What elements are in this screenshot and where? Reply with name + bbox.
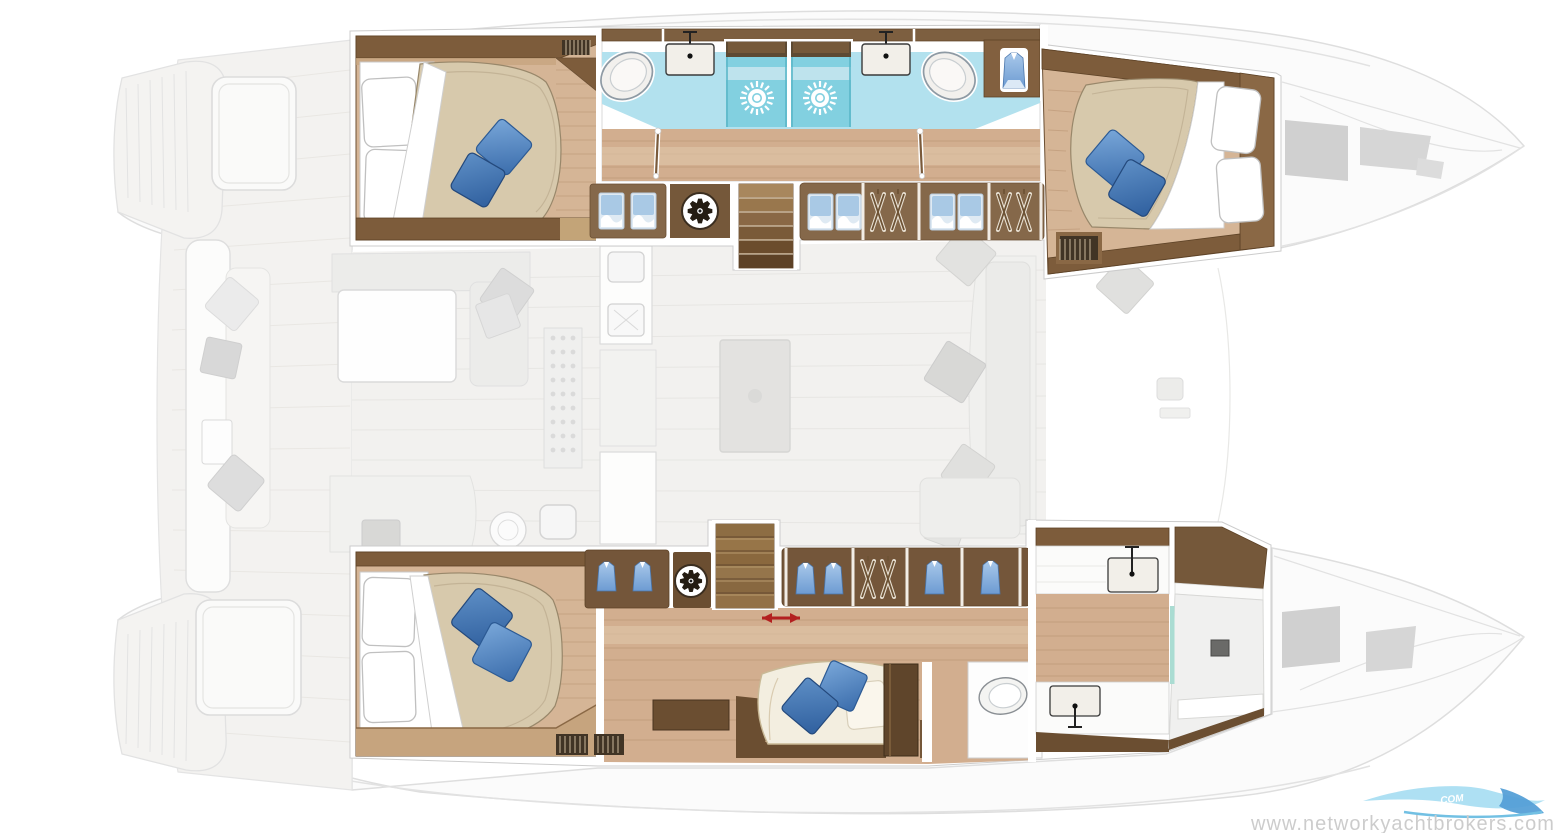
svg-text:www.networkyachtbrokers.com: www.networkyachtbrokers.com	[1250, 813, 1555, 833]
